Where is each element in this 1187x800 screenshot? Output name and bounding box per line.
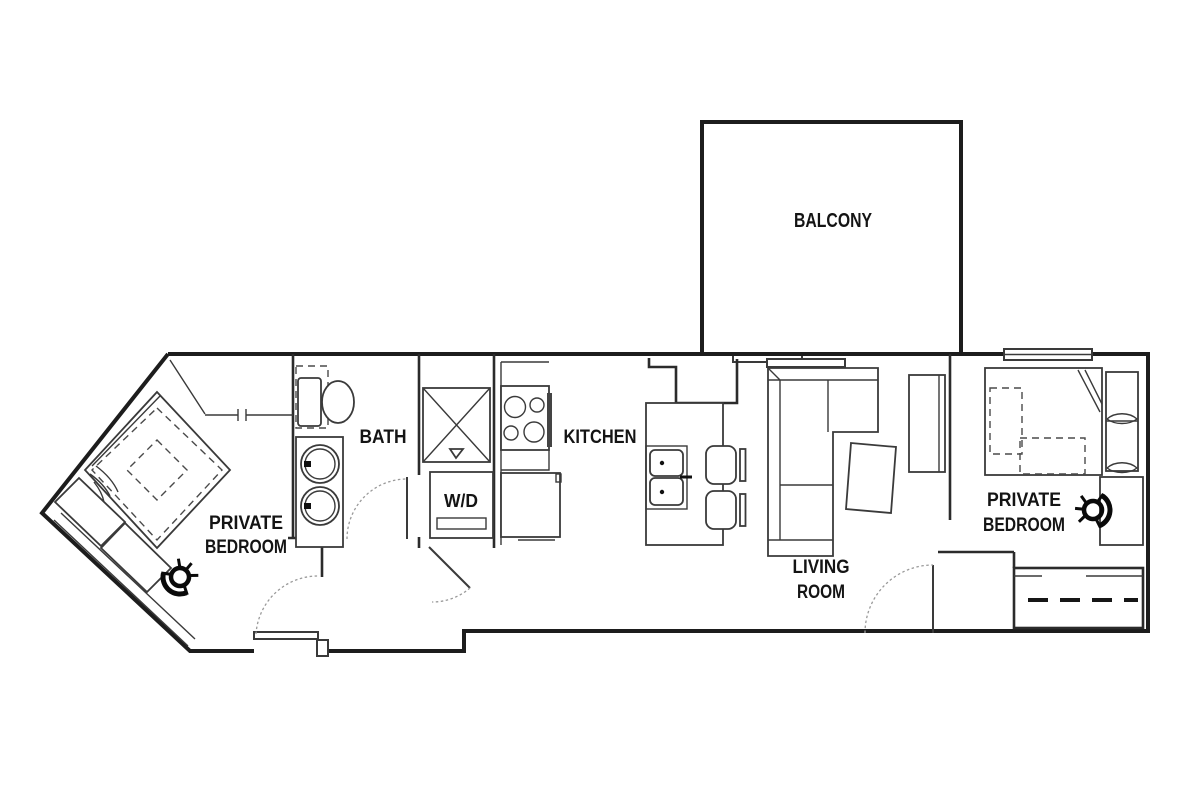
bedroom-right-label-line1: PRIVATE [987, 490, 1061, 511]
range [501, 386, 549, 450]
entry-door-swing [256, 576, 318, 634]
wall-bedroom-right-closet [938, 552, 1014, 568]
bar-stool-back [740, 449, 746, 481]
bath-fixtures [296, 366, 354, 547]
desk [1100, 477, 1143, 545]
bath-label: BATH [360, 427, 407, 448]
bar-stool [706, 446, 736, 484]
balcony-walls [702, 122, 961, 352]
bedroom-left-furniture [55, 392, 230, 601]
laundry-door-swing [432, 588, 470, 602]
bar-stool [706, 491, 736, 529]
entry-threshold [317, 640, 328, 656]
chair-base [1074, 491, 1104, 527]
bar-stool-back [740, 494, 746, 526]
toilet-tank [298, 378, 321, 426]
bedroom-left-label-line1: PRIVATE [209, 513, 283, 534]
sink-basin [650, 450, 683, 476]
coffee-table [846, 443, 896, 513]
oven-handle [547, 393, 552, 447]
floor-plan-page: BALCONY PRIVATE BEDROOM BATH W/D KITCHEN… [0, 0, 1187, 800]
kitchen-fixtures [501, 362, 746, 545]
floor-plan-drawing: BALCONY PRIVATE BEDROOM BATH W/D KITCHEN… [0, 0, 1187, 800]
kitchen-label: KITCHEN [564, 427, 637, 448]
sliding-balcony-door [767, 359, 845, 367]
closet-left-lines [170, 360, 293, 421]
bedroom-left-label-line2: BEDROOM [205, 537, 287, 558]
sink-basin [650, 478, 683, 505]
drain-dot [660, 490, 664, 494]
balcony-label: BALCONY [794, 210, 873, 232]
laundry-door-leaf [429, 547, 470, 588]
living-room-label-line1: LIVING [793, 557, 850, 578]
faucet [304, 461, 311, 467]
laundry-label: W/D [444, 491, 478, 511]
living-room-furniture [768, 368, 945, 556]
refrigerator [501, 473, 560, 537]
entry-door-leaf [254, 632, 318, 639]
bedroom-right-label-line2: BEDROOM [983, 515, 1065, 536]
exterior-walls [42, 349, 1148, 651]
faucet [304, 503, 311, 509]
bath-door-swing [347, 479, 407, 539]
wall-column [649, 358, 737, 403]
balcony [702, 122, 961, 367]
drain-dot [660, 461, 664, 465]
toilet-bowl [322, 381, 354, 423]
shower-laundry [423, 388, 493, 538]
living-room-label-line2: ROOM [797, 582, 845, 603]
bedroom-right-door-swing [865, 565, 933, 633]
